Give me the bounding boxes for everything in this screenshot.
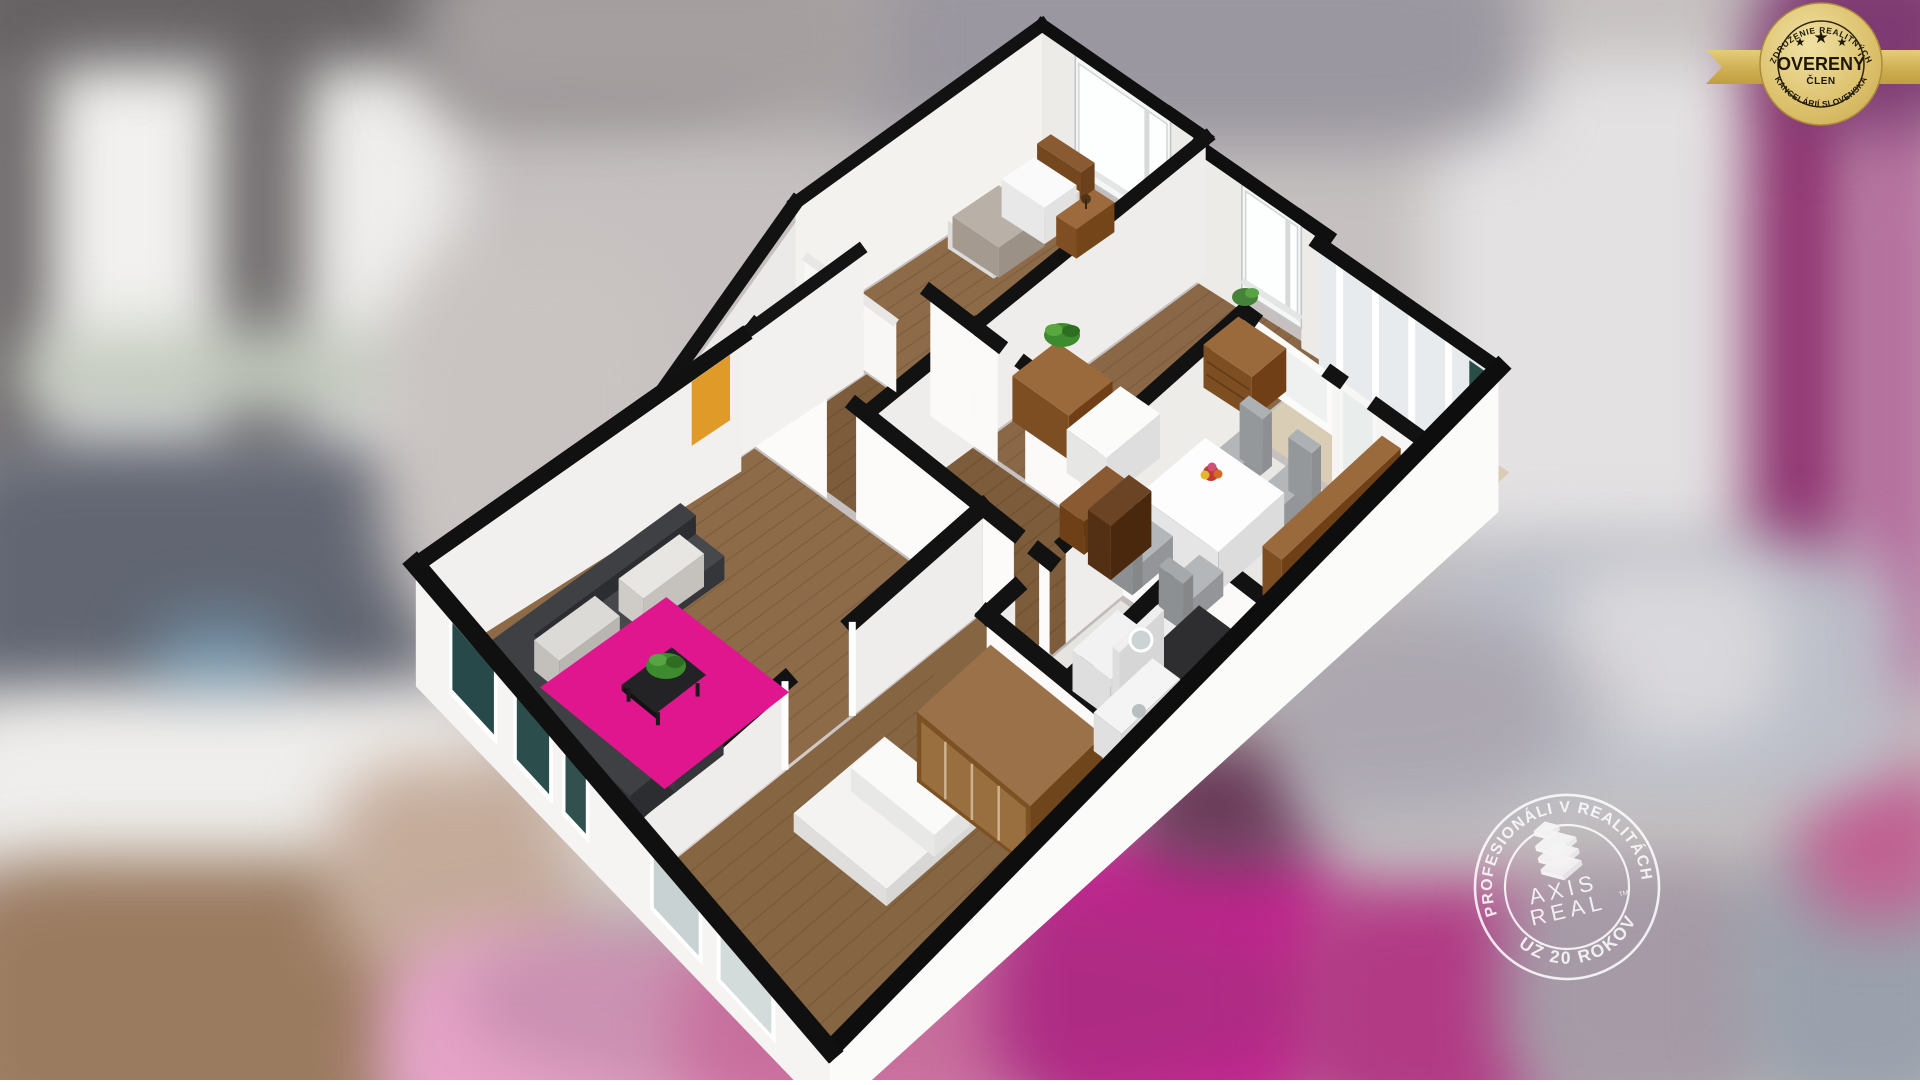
svg-text:★: ★	[1813, 28, 1828, 47]
svg-text:★: ★	[1795, 35, 1806, 49]
svg-text:★: ★	[1837, 35, 1848, 49]
svg-text:OVERENÝ: OVERENÝ	[1777, 53, 1865, 74]
svg-text:ČLEN: ČLEN	[1806, 74, 1835, 87]
